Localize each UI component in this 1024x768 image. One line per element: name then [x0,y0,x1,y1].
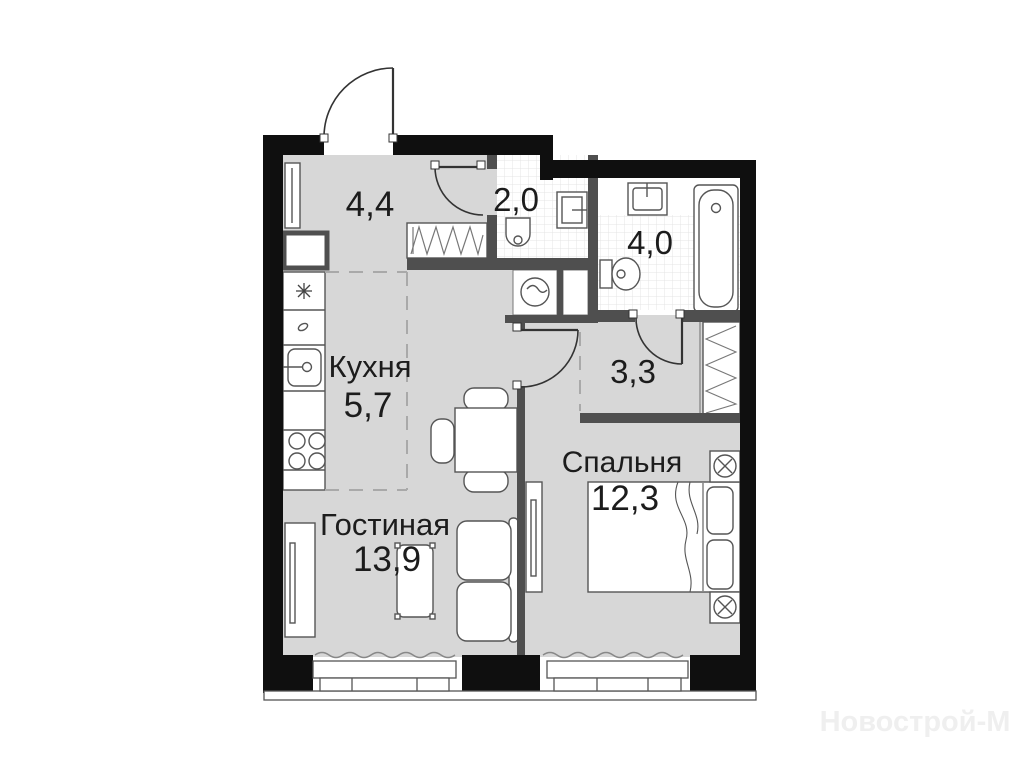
wall-wc-bath-divider [588,155,598,323]
dining-chair [431,419,454,463]
window-sill [264,691,756,700]
entrance-door [320,68,397,142]
outer-wall-bottom-left [283,655,313,693]
wall-wc-bottom [407,258,598,270]
wc-area-label: 2,0 [493,181,539,218]
washer-niche [513,270,557,315]
dining-chair [464,388,508,410]
tv-icon [290,543,295,623]
wardrobe-icon [703,322,740,415]
outer-wall-left [263,135,283,693]
bedroom-area-label: 12,3 [591,479,659,518]
hallway-area-label: 4,4 [346,185,395,224]
bathtub-icon [694,185,738,312]
wall-bath-bottom-right [682,310,740,322]
pillow [707,487,733,534]
wall-wc-left-stub [487,155,497,169]
toilet-icon [506,218,530,246]
outer-wall-right [740,160,756,657]
outer-wall-top-a [263,135,324,155]
wall-bedroom-top [580,413,740,423]
wall-living-bedroom [517,386,525,655]
wc-washbasin-icon [557,192,587,228]
kitchen-fixtures [283,272,325,490]
shaft-niche [563,270,588,315]
floor-plan-drawing: 4,4 2,0 4,0 Кухня 5,7 3,3 Гостиная 13,9 … [0,0,1024,768]
wall-niche-divider [557,270,563,315]
bathroom-area-label: 4,0 [627,224,673,261]
kitchen-area-label: 5,7 [344,386,393,425]
floor-plan-page: 4,4 2,0 4,0 Кухня 5,7 3,3 Гостиная 13,9 … [0,0,1024,768]
wall-wc-left [487,215,497,258]
outer-wall-top-b [393,135,540,155]
watermark-text: Новострой-М [820,706,1011,738]
outer-wall-bottom-mid [462,655,540,693]
kitchen-name-label: Кухня [329,349,412,384]
nightstand-lamp-icon [710,451,740,482]
dining-table-icon [455,408,517,472]
window-living [313,661,456,691]
outer-wall-step [540,135,553,180]
window-bedroom [547,661,688,691]
kitchen-sink-icon [283,349,321,386]
bedroom-tv-icon [531,500,536,576]
nightstand-lamp-icon [710,592,740,623]
vent-shaft-icon [284,233,327,268]
bedroom-name-label: Спальня [562,446,683,479]
fridge-icon [296,283,312,299]
washbasin-icon [628,183,667,215]
sofa-icon [457,518,518,642]
outer-wall-bottom-right [690,655,756,693]
pillow [707,540,733,589]
corridor-wardrobe [700,322,740,415]
outer-wall-top-right [553,160,756,178]
living-area-label: 13,9 [353,540,421,579]
living-name-label: Гостиная [320,507,450,542]
bathroom-toilet-icon [600,258,640,290]
dining-chair [464,470,508,492]
corridor-area-label: 3,3 [610,353,656,390]
